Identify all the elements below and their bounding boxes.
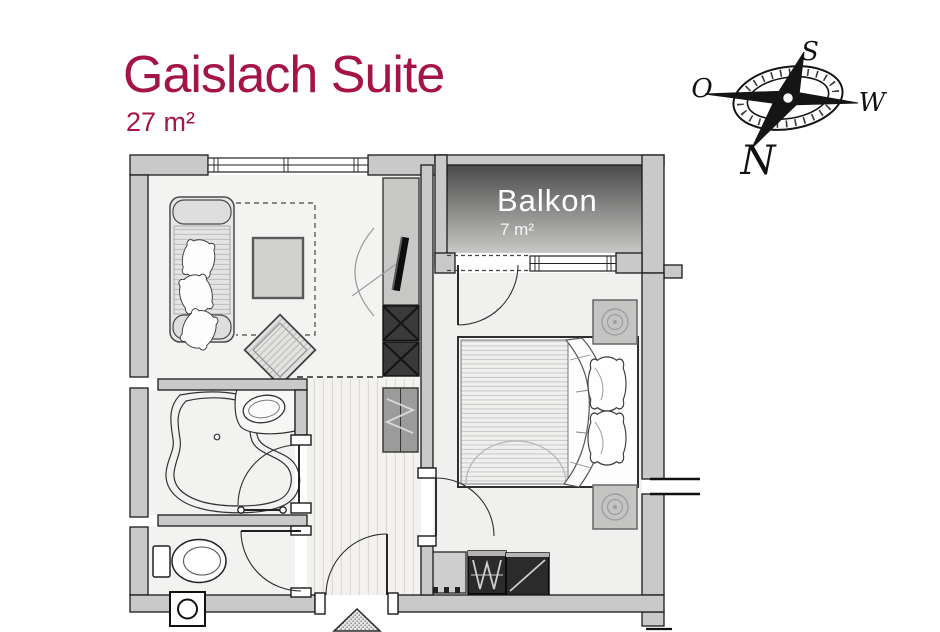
balcony-label: Balkon [497, 183, 598, 218]
minibar-cabinet [468, 551, 506, 594]
entrance-arrow-icon [334, 609, 380, 631]
floor-plan-page: Gaislach Suite 27 m² [0, 0, 940, 632]
balcony-area: 7 m² [500, 220, 534, 239]
wardrobe-closet [383, 306, 419, 376]
nightstand-bottom [593, 485, 637, 529]
compass-rose: S O W N [660, 10, 910, 190]
wall-break-ticks [650, 479, 700, 494]
bedroom-window [530, 256, 616, 271]
service-shaft [170, 592, 205, 626]
compass-label-south: S [801, 37, 819, 67]
compass-label-east: O [691, 74, 712, 104]
hall-wardrobe [383, 388, 418, 452]
compass-label-north: N [740, 138, 778, 184]
storage-cabinet [506, 553, 549, 595]
sofa [170, 197, 234, 353]
living-room-window [208, 158, 368, 172]
luggage-bench [429, 552, 466, 593]
coffee-table [253, 238, 303, 298]
compass-label-west: W [859, 88, 888, 118]
neighbor-wall-stub [664, 265, 682, 278]
sofa-armrest-top [173, 200, 231, 224]
bed-duvet [461, 340, 568, 484]
toilet [153, 540, 226, 583]
washbasin [235, 389, 295, 434]
compass-needle-icon [705, 52, 858, 148]
double-bed [458, 337, 638, 487]
nightstand-top [593, 300, 637, 344]
